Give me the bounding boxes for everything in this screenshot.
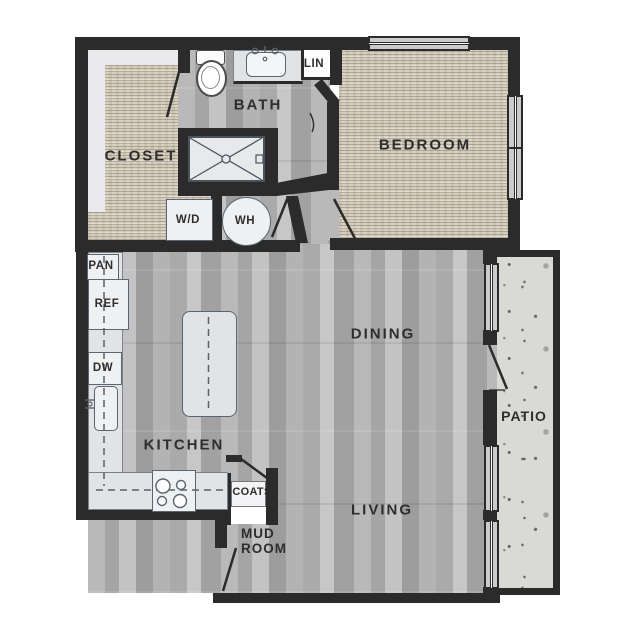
label-mud-room: MUD ROOM — [241, 526, 301, 556]
wall-dining-seg3 — [483, 390, 497, 445]
living-window-lower — [484, 520, 499, 589]
wall-bedroom-bottom — [330, 238, 520, 250]
wall-closet-kitchen — [76, 240, 300, 252]
toilet-bowl-icon — [196, 60, 227, 97]
kitchen-sink — [94, 386, 118, 431]
stove — [152, 470, 196, 512]
floor-plan: CLOSET BATH BEDROOM KITCHEN DINING LIVIN… — [0, 0, 639, 639]
living-window-upper — [484, 445, 499, 512]
window-sash-divider — [508, 147, 522, 149]
patio-outline-bottom — [497, 588, 560, 595]
label-living: LIVING — [351, 502, 413, 519]
mudroom-passage — [231, 507, 266, 524]
window-pane — [485, 521, 491, 588]
label-linen: LIN — [304, 58, 324, 70]
label-patio: PATIO — [501, 408, 547, 424]
window-pane — [369, 37, 469, 43]
window-pane — [492, 521, 498, 588]
closet-shelf-left — [88, 50, 105, 212]
label-washer-dryer: W/D — [176, 214, 200, 226]
toilet-bowl-inner — [201, 66, 220, 89]
label-coats: COATS — [232, 486, 271, 498]
label-water-heater: WH — [235, 215, 255, 227]
label-dishwasher: DW — [93, 362, 113, 374]
window-pane — [369, 44, 469, 50]
bedroom-top-window — [368, 36, 470, 51]
label-bedroom: BEDROOM — [379, 137, 471, 154]
patio-outline-corner — [497, 250, 520, 257]
wall-bedroom-left-upper — [330, 47, 342, 85]
wall-left-lower — [76, 244, 88, 520]
window-pane — [492, 264, 498, 331]
dining-window — [484, 263, 499, 332]
window-pane — [492, 446, 498, 511]
label-bath: BATH — [234, 97, 283, 114]
window-pane — [485, 264, 491, 331]
label-closet: CLOSET — [105, 148, 178, 165]
bedroom-right-window — [507, 95, 523, 200]
patio-outline-right — [553, 250, 560, 595]
wall-dining-seg1 — [483, 250, 497, 264]
vanity-sink — [246, 52, 286, 77]
label-refrigerator: REF — [95, 298, 120, 310]
wall-dining-seg2 — [483, 330, 497, 345]
shower-pan — [188, 136, 265, 182]
wall-bath-closet — [178, 50, 190, 73]
window-pane — [485, 446, 491, 511]
kitchen-island — [182, 311, 237, 417]
label-kitchen: KITCHEN — [144, 437, 225, 454]
wall-coats-stub — [226, 455, 242, 462]
wall-bedroom-left-lower — [327, 102, 339, 190]
label-dining: DINING — [351, 326, 416, 343]
wall-left-upper — [75, 37, 88, 252]
label-pantry: PAN — [88, 260, 113, 272]
wall-bottom — [213, 593, 500, 603]
